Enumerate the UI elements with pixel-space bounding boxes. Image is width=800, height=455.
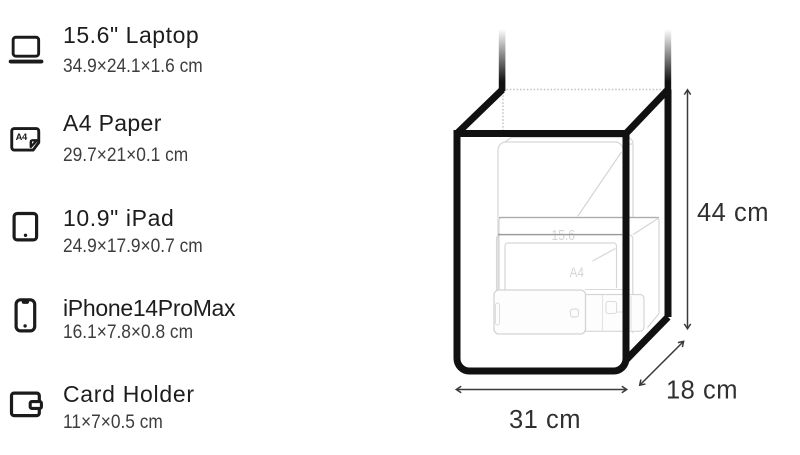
svg-text:44 cm: 44 cm [697,199,769,227]
svg-text:18 cm: 18 cm [666,377,738,405]
svg-text:A4: A4 [570,265,585,280]
svg-text:31 cm: 31 cm [509,406,581,434]
svg-text:15.6: 15.6 [552,228,576,244]
